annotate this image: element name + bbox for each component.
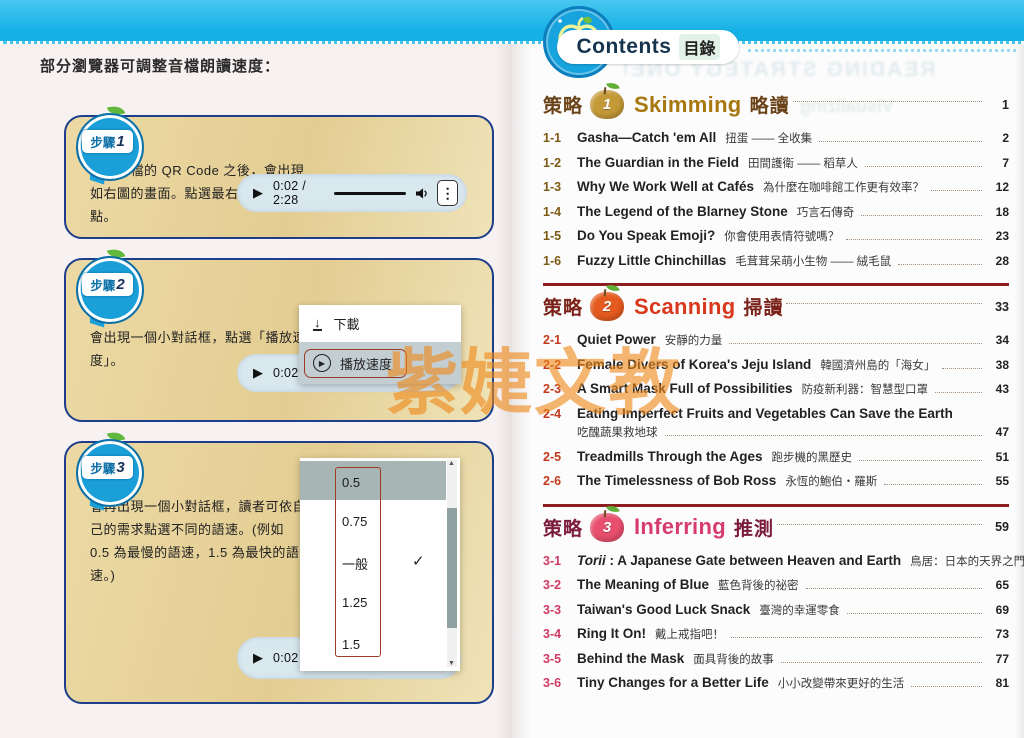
- page-number: 43: [989, 381, 1009, 399]
- step-badge-label: 步驟: [90, 132, 115, 151]
- kebab-menu-icon[interactable]: ⋮: [437, 180, 458, 206]
- toc-entry: 3-4 Ring It On! 戴上戒指吧！ 73: [543, 625, 1009, 645]
- section-label: 策略: [543, 514, 583, 541]
- dotted-leader: [861, 215, 982, 216]
- entry-title-en: Ring It On!: [577, 625, 646, 643]
- dotted-leader: [665, 435, 983, 436]
- step1-panel: 步驟 1 掃描音檔的 QR Code 之後，會出現如右圖的畫面。點選最右邊的三個…: [64, 115, 494, 239]
- watermark: 紫婕文教: [386, 348, 682, 420]
- play-icon[interactable]: ▶: [253, 185, 263, 201]
- dotted-leader: [847, 613, 982, 614]
- toc-entry: 1-1 Gasha—Catch 'em All 扭蛋 —— 全收集 2: [543, 129, 1009, 149]
- entry-title-en: Do You Speak Emoji?: [577, 227, 715, 245]
- highlight-outline: [335, 467, 381, 657]
- entry-title-zh: 扭蛋 —— 全收集: [725, 131, 812, 149]
- page-number: 12: [989, 179, 1009, 197]
- step-badge-number: 3: [116, 459, 124, 476]
- page-number: 38: [989, 357, 1009, 375]
- speed-dropdown: 0.5 0.75 一般 1.25 1.5 ✓ ▲ ▼: [300, 458, 460, 671]
- entry-title-en: Gasha—Catch 'em All: [577, 129, 716, 147]
- dotted-leader: [865, 166, 982, 167]
- entry-title-en: Why We Work Well at Cafés: [577, 178, 754, 196]
- dotted-leader: [781, 662, 982, 663]
- entry-number: 2-6: [543, 473, 577, 491]
- page-number: 28: [989, 253, 1009, 271]
- toc-entry: 3-5 Behind the Mask 面具背後的故事 77: [543, 650, 1009, 670]
- page-number: 59: [989, 520, 1009, 534]
- entry-title-zh: 防疫新利器：智慧型口罩: [802, 382, 929, 400]
- seek-bar[interactable]: [334, 192, 406, 195]
- section-number: 2: [603, 298, 611, 315]
- apple-number-badge: 1: [590, 90, 624, 119]
- entry-title-en: Fuzzy Little Chinchillas: [577, 252, 726, 270]
- entry-title-en: Behind the Mask: [577, 650, 684, 668]
- scroll-up-icon[interactable]: ▲: [448, 460, 455, 467]
- entry-title-zh: 毛茸茸呆萌小生物 —— 絨毛鼠: [735, 254, 891, 272]
- entry-number: 3-4: [543, 626, 577, 644]
- playback-speed-label: 播放速度: [340, 354, 392, 373]
- entry-title-zh: 你會使用表情符號嗎？: [724, 229, 839, 247]
- page-number: 18: [989, 204, 1009, 222]
- entry-number: 2-5: [543, 449, 577, 467]
- dotted-leader: [793, 101, 982, 102]
- dotted-leader: [942, 368, 982, 369]
- download-icon: ↓: [313, 316, 322, 332]
- toc-entry: 1-5 Do You Speak Emoji? 你會使用表情符號嗎？ 23: [543, 227, 1009, 247]
- toc-section-inferring: 策略 3 Inferring 推測 59 3-1 Torii : A Japan…: [543, 513, 1009, 694]
- section-title-en: Scanning: [634, 294, 735, 320]
- dotted-leader: [819, 141, 982, 142]
- section-title-en: Inferring: [634, 514, 726, 540]
- step-badge-label: 步驟: [90, 275, 115, 294]
- step2-badge: 步驟 2: [74, 252, 152, 338]
- entry-number: 1-1: [543, 130, 577, 148]
- play-icon[interactable]: ▶: [253, 650, 263, 666]
- page-number: 77: [989, 651, 1009, 669]
- page-number: 51: [989, 449, 1009, 467]
- dotted-leader: [935, 392, 982, 393]
- contents-title-pill: Contents 目錄: [557, 30, 739, 64]
- dotted-leader: [846, 239, 982, 240]
- entry-title-en: The Guardian in the Field: [577, 154, 739, 172]
- page-number: 34: [989, 332, 1009, 350]
- entry-title-zh: 韓國濟州島的「海女」: [820, 358, 935, 376]
- step3-panel: 步驟 3 會再出現一個小對話框，讀者可依自己的需求點選不同的語速。(例如 0.5…: [64, 441, 494, 704]
- entry-title-zh: 田間護衛 —— 稻草人: [748, 156, 858, 174]
- entry-title-zh: 永恆的鮑伯・羅斯: [785, 474, 877, 492]
- scrollbar-thumb[interactable]: [447, 508, 457, 628]
- dotted-leader: [786, 303, 982, 304]
- dotted-leader: [729, 343, 982, 344]
- page-number: 55: [989, 473, 1009, 491]
- entry-title-zh: 跑步機的黑歷史: [772, 450, 853, 468]
- entry-title-zh: 小小改變帶來更好的生活: [778, 676, 905, 694]
- entry-number: 1-6: [543, 253, 577, 271]
- page-number: 1: [989, 98, 1009, 112]
- section-title-zh: 掃讀: [743, 293, 783, 320]
- toc-entry: 1-6 Fuzzy Little Chinchillas 毛茸茸呆萌小生物 ——…: [543, 252, 1009, 272]
- entry-title-en: Taiwan's Good Luck Snack: [577, 601, 750, 619]
- dotted-leader: [777, 524, 982, 525]
- dotted-leader: [911, 686, 982, 687]
- entry-number: 3-5: [543, 651, 577, 669]
- entry-title-zh: 藍色背後的祕密: [718, 578, 799, 596]
- page-number: 47: [989, 424, 1009, 442]
- page-number: 73: [989, 626, 1009, 644]
- toc-entry: 3-2 The Meaning of Blue 藍色背後的祕密 65: [543, 576, 1009, 596]
- top-banner: [0, 0, 1024, 44]
- audio-player: ▶ 0:02 / 2:28 ⋮: [237, 174, 467, 212]
- step-badge-number: 1: [116, 133, 124, 150]
- section-header: 策略 2 Scanning 掃讀 33: [543, 292, 1009, 321]
- dotted-leader: [898, 264, 982, 265]
- step-badge-number: 2: [116, 276, 124, 293]
- contents-title-en: Contents: [576, 35, 671, 59]
- apple-number-badge: 3: [590, 513, 624, 542]
- left-page-intro: 部分瀏覽器可調整音檔朗讀速度：: [40, 55, 280, 76]
- entry-number: 3-6: [543, 675, 577, 693]
- step1-badge: 步驟 1: [74, 109, 152, 195]
- section-title-zh: 推測: [734, 514, 774, 541]
- toc-entry: 3-3 Taiwan's Good Luck Snack 臺灣的幸運零食 69: [543, 601, 1009, 621]
- entry-number: 3-3: [543, 602, 577, 620]
- play-icon[interactable]: ▶: [253, 365, 263, 381]
- page-number: 23: [989, 228, 1009, 246]
- entry-number: 3-2: [543, 577, 577, 595]
- dotted-leader: [731, 637, 982, 638]
- download-label: 下載: [334, 314, 360, 333]
- section-number: 3: [603, 519, 611, 536]
- dotted-leader: [806, 588, 982, 589]
- entry-number: 1-4: [543, 204, 577, 222]
- section-title-zh: 略讀: [750, 91, 790, 118]
- page-number: 81: [989, 675, 1009, 693]
- scroll-down-icon[interactable]: ▼: [448, 660, 455, 667]
- entry-number: 1-2: [543, 155, 577, 173]
- entry-title-zh: 為什麼在咖啡館工作更有效率？: [763, 180, 924, 198]
- step-badge-label: 步驟: [90, 458, 115, 477]
- section-header: 策略 1 Skimming 略讀 1: [543, 90, 1009, 119]
- banner-dotted-line: [748, 49, 1016, 52]
- audio-time: 0:02 / 2:28: [273, 179, 322, 207]
- entry-number: 1-3: [543, 179, 577, 197]
- entry-title-en: The Timelessness of Bob Ross: [577, 472, 776, 490]
- entry-title-en: Treadmills Through the Ages: [577, 448, 763, 466]
- entry-number: 1-5: [543, 228, 577, 246]
- entry-title-zh: 面具背後的故事: [693, 652, 774, 670]
- section-label: 策略: [543, 91, 583, 118]
- toc-entry: 1-3 Why We Work Well at Cafés 為什麼在咖啡館工作更…: [543, 178, 1009, 198]
- scrollbar[interactable]: ▲ ▼: [447, 460, 457, 667]
- entry-title-zh: 戴上戒指吧！: [655, 627, 724, 645]
- page-number: 69: [989, 602, 1009, 620]
- entry-title-zh: 鳥居：日本的天界之門: [910, 554, 1024, 572]
- entry-title-italic: Torii: [577, 553, 606, 568]
- contents-title-zh: 目錄: [679, 34, 719, 60]
- page-number: 65: [989, 577, 1009, 595]
- dotted-leader: [884, 484, 982, 485]
- toc-entry: 3-6 Tiny Changes for a Better Life 小小改變帶…: [543, 674, 1009, 694]
- apple-number-badge: 2: [590, 292, 624, 321]
- section-label: 策略: [543, 293, 583, 320]
- toc-entry: 1-4 The Legend of the Blarney Stone 巧言石傳…: [543, 203, 1009, 223]
- section-header: 策略 3 Inferring 推測 59: [543, 513, 1009, 542]
- toc-entry: 3-1 Torii : A Japanese Gate between Heav…: [543, 552, 1009, 572]
- page-number: 7: [989, 155, 1009, 173]
- section-title-en: Skimming: [634, 92, 742, 118]
- dotted-leader: [859, 460, 982, 461]
- toc-entry: 1-2 The Guardian in the Field 田間護衛 —— 稻草…: [543, 154, 1009, 174]
- check-icon: ✓: [412, 552, 425, 570]
- toc-entry: 2-6 The Timelessness of Bob Ross 永恆的鮑伯・羅…: [543, 472, 1009, 492]
- page-number: 2: [989, 130, 1009, 148]
- page-number: 33: [989, 300, 1009, 314]
- entry-title-en: Torii : A Japanese Gate between Heaven a…: [577, 552, 901, 570]
- step3-badge: 步驟 3: [74, 435, 152, 521]
- toc-entry: 2-5 Treadmills Through the Ages 跑步機的黑歷史 …: [543, 448, 1009, 468]
- playback-speed-icon: ▶: [313, 354, 331, 372]
- entry-title-rest: : A Japanese Gate between Heaven and Ear…: [606, 553, 901, 568]
- entry-title-zh: 吃醜蔬果救地球: [577, 425, 658, 443]
- volume-icon[interactable]: [416, 186, 429, 201]
- toc-section-skimming: 策略 1 Skimming 略讀 1 1-1 Gasha—Catch 'em A…: [543, 90, 1009, 271]
- section-number: 1: [603, 96, 611, 113]
- entry-title-zh: 巧言石傳奇: [797, 205, 855, 223]
- entry-title-en: The Meaning of Blue: [577, 576, 709, 594]
- menu-item-download[interactable]: ↓ 下載: [299, 305, 461, 342]
- entry-title-zh: 臺灣的幸運零食: [759, 603, 840, 621]
- dotted-leader: [931, 190, 982, 191]
- entry-title-en: Tiny Changes for a Better Life: [577, 674, 769, 692]
- entry-title-en: The Legend of the Blarney Stone: [577, 203, 788, 221]
- entry-number: 3-1: [543, 553, 577, 571]
- page-edge-shadow: [1014, 0, 1024, 738]
